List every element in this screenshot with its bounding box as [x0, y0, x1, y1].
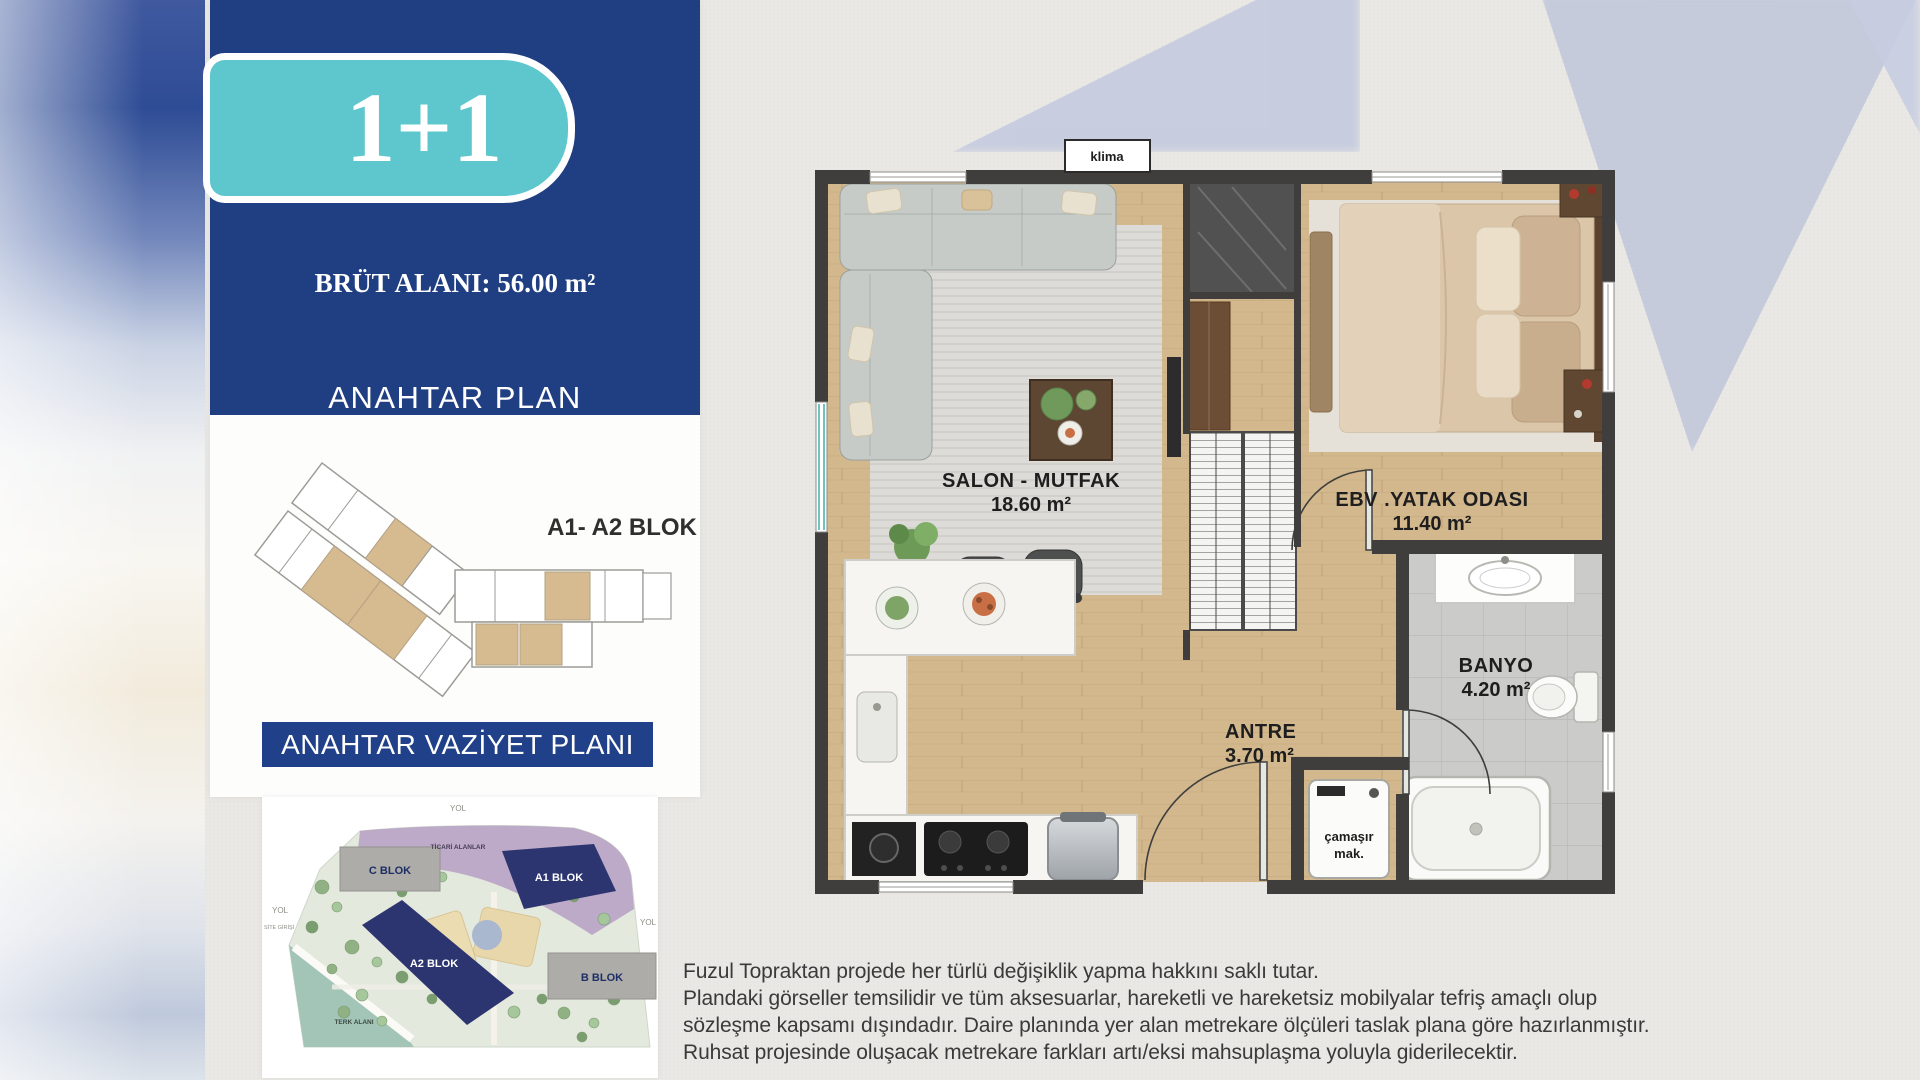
- key-plan-block-label: A1- A2 BLOK: [547, 514, 697, 541]
- pond: [472, 920, 502, 950]
- washer-label-2: mak.: [1334, 846, 1364, 861]
- block-label-a1: A1 BLOK: [535, 872, 583, 884]
- wardrobe: [1190, 432, 1296, 630]
- room-area-antre: 3.70 m²: [1225, 745, 1294, 767]
- disclaimer-line: sözleşme kapsamı dışındadır. Daire planı…: [683, 1012, 1743, 1039]
- media-console: [1167, 357, 1181, 457]
- disclaimer-text: Fuzul Topraktan projede her türlü değişi…: [683, 958, 1743, 1066]
- washer-label-1: çamaşır: [1324, 829, 1373, 844]
- disclaimer-line: Ruhsat projesinde oluşacak metrekare far…: [683, 1039, 1743, 1066]
- key-plan-title: ANAHTAR PLAN: [210, 380, 700, 416]
- ac-unit-label: klima: [1090, 149, 1124, 164]
- kitchen-sink-unit: [852, 822, 916, 876]
- left-blur-strip: [0, 0, 205, 1080]
- bed-bench: [1310, 232, 1332, 412]
- unit-type-badge: 1+1: [203, 53, 575, 203]
- room-area-bedroom: 11.40 m²: [1393, 513, 1472, 535]
- floor-plan: klima SALON - MUTFAK 18.60 m² EBV .YATAK…: [812, 132, 1622, 898]
- unit-type-label: 1+1: [346, 78, 503, 178]
- site-plan-title-bar: ANAHTAR VAZİYET PLANI: [262, 722, 653, 767]
- road-label-top: YOL: [450, 804, 467, 813]
- trash-can: [1048, 812, 1118, 880]
- site-plan-title: ANAHTAR VAZİYET PLANI: [281, 729, 634, 761]
- terk-alani-label: TERK ALANI: [334, 1019, 373, 1026]
- road-label-right: YOL: [640, 918, 657, 927]
- sink-vanity: [1435, 551, 1575, 603]
- room-label-banyo: BANYO: [1459, 655, 1534, 677]
- key-plan-drawing: A1- A2 BLOK: [210, 415, 700, 722]
- block-label-c: C BLOK: [369, 865, 411, 877]
- disclaimer-line: Plandaki görseller temsilidir ve tüm aks…: [683, 985, 1743, 1012]
- sail-shape-icon: [940, 0, 1360, 152]
- room-label-antre: ANTRE: [1225, 721, 1296, 743]
- site-plan-drawing: C BLOK A1 BLOK A2 BLOK B BLOK YOL YOL YO…: [262, 797, 658, 1078]
- block-label-a2: A2 BLOK: [410, 958, 458, 970]
- brochure-page: 1+1 BRÜT ALANI: 56.00 m² ANAHTAR PLAN: [0, 0, 1920, 1080]
- cooktop: [924, 822, 1028, 876]
- disclaimer-line: Fuzul Topraktan projede her türlü değişi…: [683, 958, 1743, 985]
- gross-area-label: BRÜT ALANI: 56.00 m²: [210, 268, 700, 299]
- commercial-areas-label: TİCARİ ALANLAR: [431, 843, 486, 851]
- site-entrance-label: SİTE GİRİŞİ: [264, 924, 295, 931]
- toilet: [1527, 672, 1598, 722]
- room-label-bedroom: EBV .YATAK ODASI: [1335, 489, 1528, 511]
- room-label-salon: SALON - MUTFAK: [942, 470, 1120, 492]
- room-area-banyo: 4.20 m²: [1462, 679, 1531, 701]
- key-plan-right-wing: [455, 570, 671, 667]
- road-label-left: YOL: [272, 906, 289, 915]
- ac-unit: klima: [1065, 140, 1150, 172]
- room-area-salon: 18.60 m²: [991, 494, 1071, 516]
- coffee-table: [1030, 380, 1112, 460]
- block-label-b: B BLOK: [581, 972, 623, 984]
- bathtub: [1402, 777, 1550, 880]
